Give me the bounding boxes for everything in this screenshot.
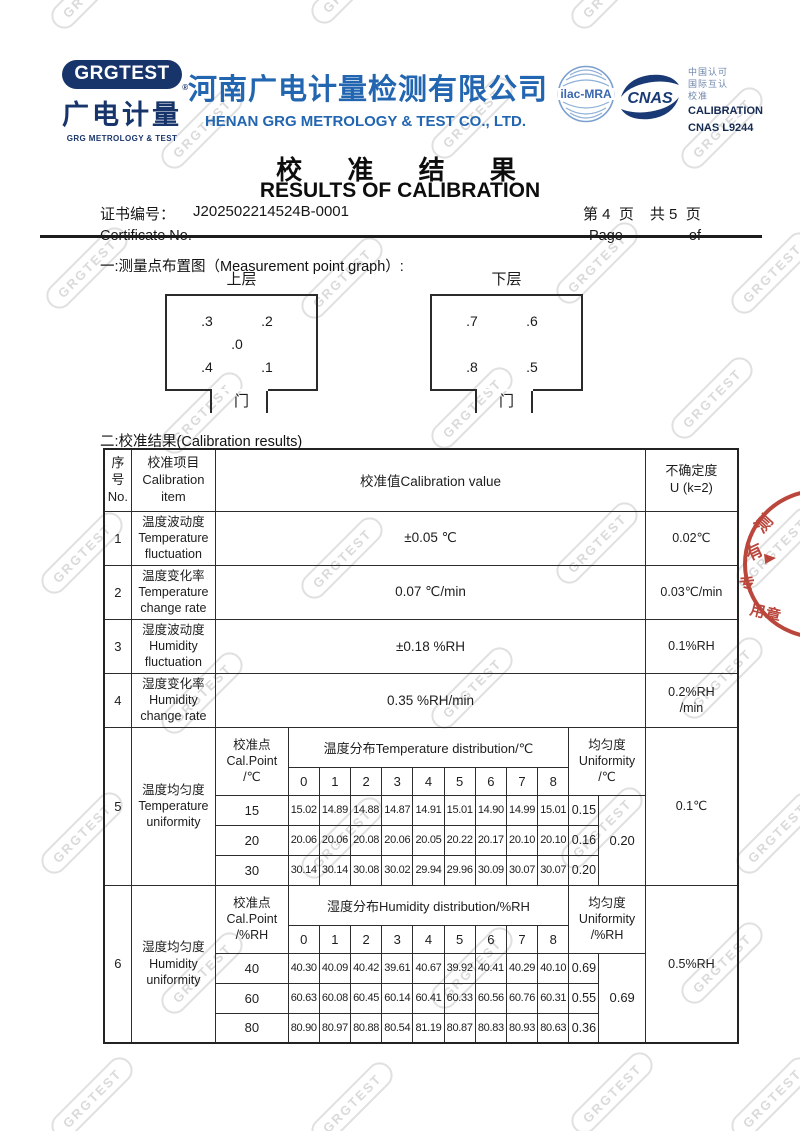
- dist-col-label: 3: [382, 767, 413, 795]
- dist-value-cell: 14.99: [506, 795, 537, 825]
- diagram-upper-layer: 上层 .3 .2 .0 .4 .1 门: [165, 268, 318, 391]
- dist-value-cell: 40.29: [506, 953, 537, 983]
- dist-col-label: 5: [444, 925, 475, 953]
- header-uncertainty: 不确定度 U (k=2): [645, 449, 738, 511]
- uniformity-value-cell: 0.55: [569, 983, 599, 1013]
- uncertainty-cell: 0.03℃/min: [645, 565, 738, 619]
- dist-col-label: 8: [538, 767, 569, 795]
- ilac-mra-text: ilac-MRA: [560, 87, 612, 101]
- dist-value-cell: 30.09: [475, 855, 506, 885]
- value-cell: ±0.18 %RH: [216, 619, 646, 673]
- overall-uniformity-cell: 0.20: [599, 795, 645, 885]
- page: GRGTESTGRGTESTGRGTESTGRGTESTGRGTESTGRGTE…: [0, 0, 800, 1131]
- door-line: [475, 391, 477, 413]
- dist-value-cell: 60.41: [413, 983, 444, 1013]
- uniformity-value-cell: 0.69: [569, 953, 599, 983]
- dist-value-cell: 30.14: [319, 855, 350, 885]
- dist-col-label: 6: [475, 925, 506, 953]
- dist-value-cell: 30.07: [538, 855, 569, 885]
- dist-value-cell: 14.90: [475, 795, 506, 825]
- dist-value-cell: 40.10: [538, 953, 569, 983]
- dist-value-cell: 29.94: [413, 855, 444, 885]
- dist-value-cell: 40.09: [319, 953, 350, 983]
- accreditation-en-line: CNAS L9244: [688, 121, 763, 135]
- logo-pill-text: GRGTEST: [74, 63, 169, 84]
- dist-value-cell: 80.90: [288, 1013, 319, 1043]
- dist-value-cell: 20.10: [538, 825, 569, 855]
- accreditation-en-line: CALIBRATION: [688, 104, 763, 118]
- value-cell: 0.35 %RH/min: [216, 673, 646, 727]
- uncertainty-cell: 0.02℃: [645, 511, 738, 565]
- dist-value-cell: 81.19: [413, 1013, 444, 1043]
- content: GRGTEST ® 广电计量 GRG METROLOGY & TEST 河南广电…: [0, 0, 800, 1131]
- diagram-upper-title: 上层: [165, 268, 318, 289]
- measure-point-3: .3: [201, 313, 213, 329]
- header-item: 校准项目 Calibration item: [131, 449, 216, 511]
- results-table: 序 号 No. 校准项目 Calibration item 校准值Calibra…: [103, 448, 739, 1044]
- item-cell: 温度波动度 Temperature fluctuation: [131, 511, 216, 565]
- dist-value-cell: 60.08: [319, 983, 350, 1013]
- page-number-cn: 第 4 页: [583, 203, 634, 224]
- page-total-cn: 共 5 页: [650, 203, 701, 224]
- dist-col-label: 1: [319, 767, 350, 795]
- company-name-block: 河南广电计量检测有限公司 HENAN GRG METROLOGY & TEST …: [188, 66, 543, 130]
- svg-text:CNAS: CNAS: [627, 90, 673, 107]
- dist-value-cell: 80.63: [538, 1013, 569, 1043]
- measure-point-1: .1: [261, 359, 273, 375]
- dist-col-label: 1: [319, 925, 350, 953]
- dist-value-cell: 39.92: [444, 953, 475, 983]
- measure-point-2: .2: [261, 313, 273, 329]
- item-cell: 湿度变化率 Humidity change rate: [131, 673, 216, 727]
- certificate-number: J202502214524B-0001: [193, 203, 349, 224]
- dist-value-cell: 60.45: [350, 983, 381, 1013]
- seal-char: 专: [738, 569, 756, 595]
- dist-col-label: 5: [444, 767, 475, 795]
- row-number-cell: 3: [104, 619, 131, 673]
- dist-col-label: 3: [382, 925, 413, 953]
- header-no: 序 号 No.: [104, 449, 131, 511]
- dist-value-cell: 60.76: [506, 983, 537, 1013]
- company-logo: GRGTEST ® 广电计量 GRG METROLOGY & TEST: [58, 60, 186, 143]
- dist-value-cell: 80.54: [382, 1013, 413, 1043]
- header-divider: [40, 235, 762, 238]
- dist-value-cell: 20.17: [475, 825, 506, 855]
- cnas-logo-icon: CNAS: [619, 72, 681, 127]
- value-cell: ±0.05 ℃: [216, 511, 646, 565]
- distribution-header-cell: 湿度分布Humidity distribution/%RH: [288, 885, 569, 925]
- measure-point-0: .0: [231, 336, 243, 352]
- dist-value-cell: 14.89: [319, 795, 350, 825]
- uniformity-header-cell: 均匀度 Uniformity /℃: [569, 727, 646, 795]
- measure-point-7: .7: [466, 313, 478, 329]
- logo-cn-text: 广电计量: [58, 93, 186, 132]
- dist-value-cell: 15.01: [444, 795, 475, 825]
- calpoint-cell: 30: [216, 855, 288, 885]
- dist-value-cell: 20.06: [319, 825, 350, 855]
- dist-value-cell: 60.63: [288, 983, 319, 1013]
- dist-value-cell: 30.08: [350, 855, 381, 885]
- dist-value-cell: 20.08: [350, 825, 381, 855]
- uniformity-value-cell: 0.15: [569, 795, 599, 825]
- dist-col-label: 7: [506, 925, 537, 953]
- calpoint-header-cell: 校准点 Cal.Point /%RH: [216, 885, 288, 953]
- dist-col-label: 2: [350, 767, 381, 795]
- logo-en-text: GRG METROLOGY & TEST: [58, 134, 186, 143]
- row-number-cell: 5: [104, 727, 131, 885]
- accreditation-cn-line: 中国认可: [688, 66, 763, 78]
- uncertainty-cell: 0.1℃: [645, 727, 738, 885]
- dist-value-cell: 20.06: [382, 825, 413, 855]
- accreditation-cn-line: 校准: [688, 90, 763, 102]
- dist-col-label: 4: [413, 767, 444, 795]
- dist-value-cell: 60.31: [538, 983, 569, 1013]
- calpoint-cell: 15: [216, 795, 288, 825]
- item-cell: 湿度均匀度 Humidity uniformity: [131, 885, 216, 1043]
- dist-value-cell: 40.41: [475, 953, 506, 983]
- dist-value-cell: 15.01: [538, 795, 569, 825]
- dist-value-cell: 20.10: [506, 825, 537, 855]
- door-line: [210, 391, 212, 413]
- diagram-lower-title: 下层: [430, 268, 583, 289]
- uncertainty-cell: 0.2%RH /min: [645, 673, 738, 727]
- item-cell: 湿度波动度 Humidity fluctuation: [131, 619, 216, 673]
- row-number-cell: 4: [104, 673, 131, 727]
- dist-value-cell: 20.22: [444, 825, 475, 855]
- accreditation-cn-line: 国际互认: [688, 78, 763, 90]
- dist-col-label: 0: [288, 925, 319, 953]
- dist-value-cell: 60.14: [382, 983, 413, 1013]
- uncertainty-cell: 0.1%RH: [645, 619, 738, 673]
- dist-value-cell: 80.83: [475, 1013, 506, 1043]
- uniformity-header-cell: 均匀度 Uniformity /%RH: [569, 885, 646, 953]
- dist-value-cell: 30.14: [288, 855, 319, 885]
- measure-point-5: .5: [526, 359, 538, 375]
- company-name-cn: 河南广电计量检测有限公司: [188, 66, 543, 108]
- dist-value-cell: 60.33: [444, 983, 475, 1013]
- dist-value-cell: 14.91: [413, 795, 444, 825]
- dist-value-cell: 14.87: [382, 795, 413, 825]
- dist-value-cell: 30.02: [382, 855, 413, 885]
- dist-col-label: 6: [475, 767, 506, 795]
- dist-value-cell: 40.42: [350, 953, 381, 983]
- dist-col-label: 0: [288, 767, 319, 795]
- header-value: 校准值Calibration value: [216, 449, 646, 511]
- row-number-cell: 1: [104, 511, 131, 565]
- dist-value-cell: 80.97: [319, 1013, 350, 1043]
- uniformity-value-cell: 0.36: [569, 1013, 599, 1043]
- item-cell: 温度均匀度 Temperature uniformity: [131, 727, 216, 885]
- door-label: 门: [234, 390, 249, 411]
- calpoint-header-cell: 校准点 Cal.Point /℃: [216, 727, 288, 795]
- row-number-cell: 2: [104, 565, 131, 619]
- dist-value-cell: 39.61: [382, 953, 413, 983]
- dist-value-cell: 60.56: [475, 983, 506, 1013]
- diagram-lower-box: .7 .6 .8 .5 门: [430, 294, 583, 391]
- dist-value-cell: 40.67: [413, 953, 444, 983]
- dist-value-cell: 29.96: [444, 855, 475, 885]
- logo-pill: GRGTEST ®: [62, 60, 181, 89]
- certificate-label-cn: 证书编号：: [100, 203, 175, 224]
- dist-col-label: 8: [538, 925, 569, 953]
- calpoint-cell: 60: [216, 983, 288, 1013]
- diagram-lower-layer: 下层 .7 .6 .8 .5 门: [430, 268, 583, 391]
- overall-uniformity-cell: 0.69: [599, 953, 645, 1043]
- uncertainty-cell: 0.5%RH: [645, 885, 738, 1043]
- ilac-mra-logo-icon: ilac-MRA: [556, 64, 616, 129]
- uniformity-value-cell: 0.20: [569, 855, 599, 885]
- dist-col-label: 7: [506, 767, 537, 795]
- uniformity-value-cell: 0.16: [569, 825, 599, 855]
- door-line: [531, 391, 533, 413]
- calpoint-cell: 80: [216, 1013, 288, 1043]
- red-seal-stamp: 测 有 专 用章: [738, 480, 800, 650]
- diagram-upper-box: .3 .2 .0 .4 .1 门: [165, 294, 318, 391]
- company-name-en: HENAN GRG METROLOGY & TEST CO., LTD.: [188, 113, 543, 130]
- door-label: 门: [499, 390, 514, 411]
- page-title-en: RESULTS OF CALIBRATION: [0, 179, 800, 203]
- dist-col-label: 4: [413, 925, 444, 953]
- calpoint-cell: 40: [216, 953, 288, 983]
- dist-value-cell: 80.93: [506, 1013, 537, 1043]
- measure-point-8: .8: [466, 359, 478, 375]
- row-number-cell: 6: [104, 885, 131, 1043]
- dist-value-cell: 30.07: [506, 855, 537, 885]
- item-cell: 温度变化率 Temperature change rate: [131, 565, 216, 619]
- measure-point-4: .4: [201, 359, 213, 375]
- door-line: [266, 391, 268, 413]
- measure-point-6: .6: [526, 313, 538, 329]
- dist-value-cell: 14.88: [350, 795, 381, 825]
- dist-value-cell: 80.88: [350, 1013, 381, 1043]
- value-cell: 0.07 ℃/min: [216, 565, 646, 619]
- dist-value-cell: 20.06: [288, 825, 319, 855]
- calpoint-cell: 20: [216, 825, 288, 855]
- dist-value-cell: 80.87: [444, 1013, 475, 1043]
- accreditation-text: 中国认可 国际互认 校准 CALIBRATION CNAS L9244: [688, 66, 763, 135]
- dist-value-cell: 15.02: [288, 795, 319, 825]
- dist-col-label: 2: [350, 925, 381, 953]
- distribution-header-cell: 温度分布Temperature distribution/℃: [288, 727, 569, 767]
- dist-value-cell: 40.30: [288, 953, 319, 983]
- dist-value-cell: 20.05: [413, 825, 444, 855]
